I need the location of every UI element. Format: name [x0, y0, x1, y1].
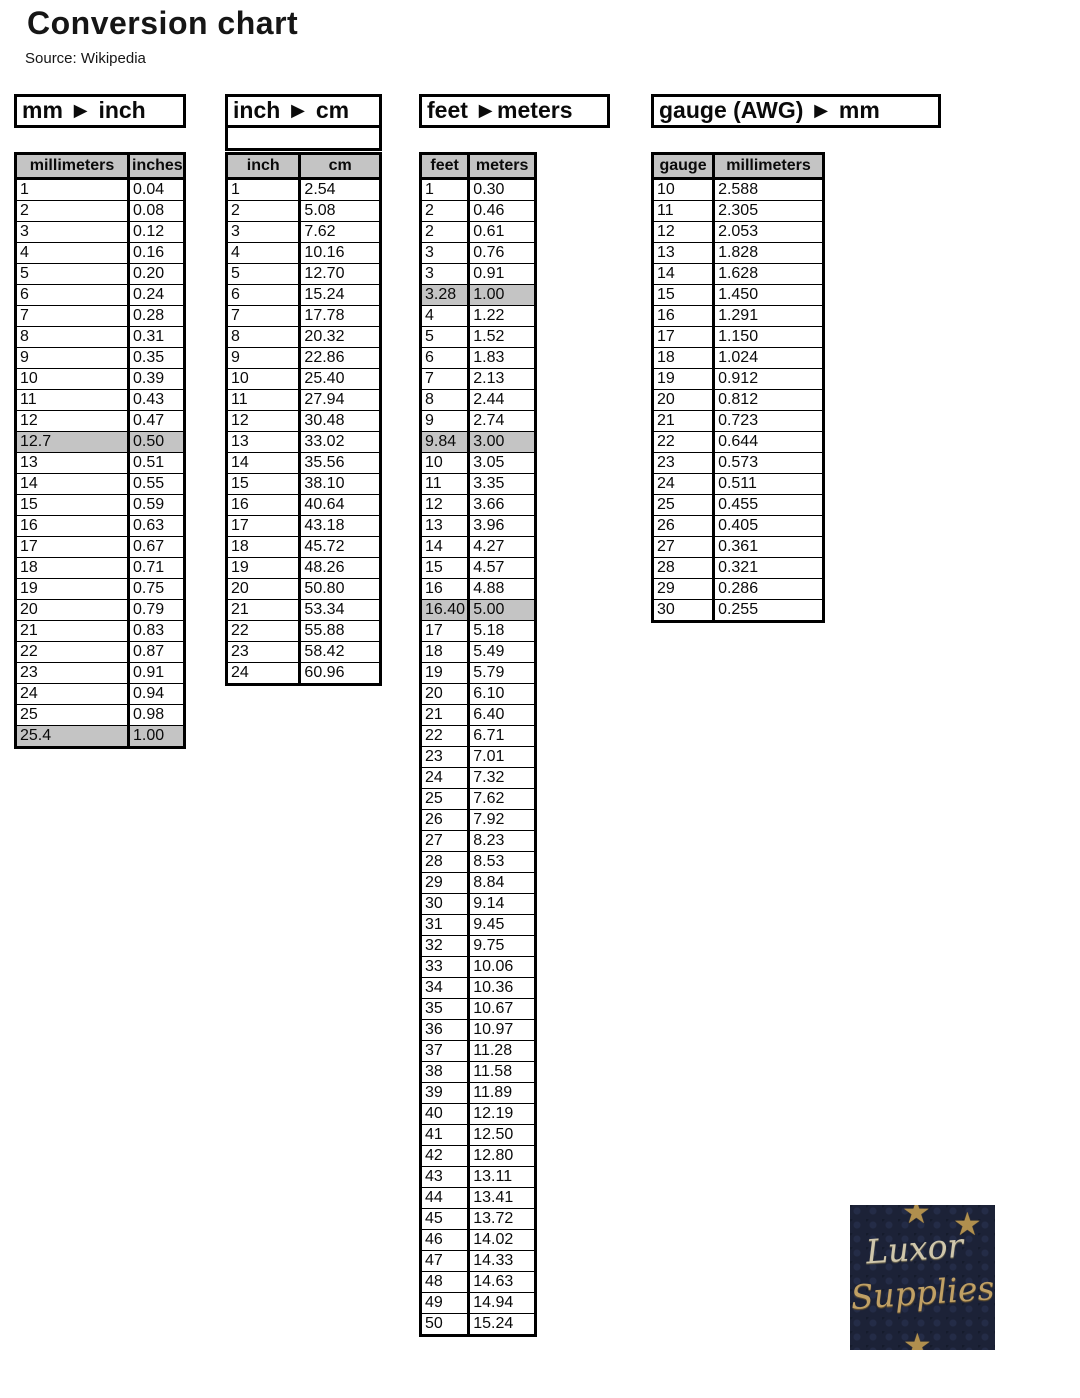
table-row: 288.53 [421, 852, 536, 873]
table-cell: 13 [227, 432, 300, 453]
table-cell: 11.28 [469, 1041, 536, 1062]
table-cell: 3.28 [421, 285, 469, 306]
table-row: 4814.63 [421, 1272, 536, 1293]
table-cell: 0.16 [129, 243, 185, 264]
table-cell: 60.96 [300, 663, 381, 685]
table-row: 298.84 [421, 873, 536, 894]
table-cell: 0.912 [714, 369, 824, 390]
table-cell: 0.98 [129, 705, 185, 726]
table-row: 717.78 [227, 306, 381, 327]
table-cell: 3 [16, 222, 129, 243]
table-row: 1845.72 [227, 537, 381, 558]
table-cell: 28 [421, 852, 469, 873]
table-cell: 46 [421, 1230, 469, 1251]
table-cell: 4.57 [469, 558, 536, 579]
table-cell: 9.75 [469, 936, 536, 957]
table-cell: 0.47 [129, 411, 185, 432]
table-row: 3410.36 [421, 978, 536, 999]
table-cell: 0.59 [129, 495, 185, 516]
table-row: 25.41.00 [16, 726, 185, 748]
table-cell: 40.64 [300, 495, 381, 516]
table-cell: 1.828 [714, 243, 824, 264]
table-cell: 7 [421, 369, 469, 390]
table-row: 110.43 [16, 390, 185, 411]
table-cell: 22 [227, 621, 300, 642]
column-header: feet [421, 154, 469, 179]
table-cell: 10.97 [469, 1020, 536, 1041]
table-cell: 11 [227, 390, 300, 411]
table-cell: 20 [16, 600, 129, 621]
table-cell: 45.72 [300, 537, 381, 558]
conversion-table-mm-inch: millimetersinches10.0420.0830.1240.1650.… [14, 152, 186, 749]
table-cell: 33 [421, 957, 469, 978]
table-row: 210.83 [16, 621, 185, 642]
table-cell: 0.31 [129, 327, 185, 348]
table-row: 181.024 [653, 348, 824, 369]
column-header: millimeters [714, 154, 824, 179]
table-row: 154.57 [421, 558, 536, 579]
table-cell: 0.12 [129, 222, 185, 243]
table-cell: 7.92 [469, 810, 536, 831]
table-row: 240.511 [653, 474, 824, 495]
table-row: 2460.96 [227, 663, 381, 685]
table-cell: 11 [421, 474, 469, 495]
table-row: 247.32 [421, 768, 536, 789]
table-row: 102.588 [653, 179, 824, 201]
table-cell: 27 [421, 831, 469, 852]
table-cell: 33.02 [300, 432, 381, 453]
table-row: 10.30 [421, 179, 536, 201]
table-row: 1948.26 [227, 558, 381, 579]
table-cell: 3 [421, 243, 469, 264]
table-row: 123.66 [421, 495, 536, 516]
table-row: 171.150 [653, 327, 824, 348]
table-row: 150.59 [16, 495, 185, 516]
table-cell: 12.7 [16, 432, 129, 453]
table-row: 30.76 [421, 243, 536, 264]
table-cell: 4.88 [469, 579, 536, 600]
table-row: 210.723 [653, 411, 824, 432]
table-row: 820.32 [227, 327, 381, 348]
table-cell: 0.04 [129, 179, 185, 201]
table-cell: 15 [16, 495, 129, 516]
table-cell: 19 [16, 579, 129, 600]
table-cell: 4 [16, 243, 129, 264]
table-cell: 0.83 [129, 621, 185, 642]
table-cell: 9.45 [469, 915, 536, 936]
table-cell: 6.10 [469, 684, 536, 705]
table-cell: 5.08 [300, 201, 381, 222]
table-row: 1127.94 [227, 390, 381, 411]
table-row: 20.08 [16, 201, 185, 222]
table-row: 300.255 [653, 600, 824, 622]
table-cell: 39 [421, 1083, 469, 1104]
table-cell: 10 [227, 369, 300, 390]
table-row: 5015.24 [421, 1314, 536, 1336]
table-cell: 20.32 [300, 327, 381, 348]
table-cell: 3.66 [469, 495, 536, 516]
section-mm-inch: mm ► inch millimetersinches10.0420.0830.… [14, 94, 186, 749]
table-row: 50.20 [16, 264, 185, 285]
table-row: 200.79 [16, 600, 185, 621]
table-cell: 0.08 [129, 201, 185, 222]
table-cell: 1.628 [714, 264, 824, 285]
table-cell: 17 [421, 621, 469, 642]
conversion-table-inch-cm: inchcm12.5425.0837.62410.16512.70615.247… [225, 152, 382, 686]
table-row: 141.628 [653, 264, 824, 285]
table-row: 1640.64 [227, 495, 381, 516]
table-cell: 5 [421, 327, 469, 348]
table-row: 220.644 [653, 432, 824, 453]
table-row: 2050.80 [227, 579, 381, 600]
table-cell: 2 [421, 201, 469, 222]
table-cell: 1.150 [714, 327, 824, 348]
table-cell: 0.39 [129, 369, 185, 390]
table-cell: 0.511 [714, 474, 824, 495]
table-cell: 16 [653, 306, 714, 327]
conversion-table-feet-meters: feetmeters10.3020.4620.6130.7630.913.281… [419, 152, 537, 1337]
table-cell: 0.321 [714, 558, 824, 579]
table-cell: 9.14 [469, 894, 536, 915]
table-cell: 0.67 [129, 537, 185, 558]
table-cell: 17 [653, 327, 714, 348]
table-cell: 14 [16, 474, 129, 495]
table-cell: 55.88 [300, 621, 381, 642]
table-cell: 13 [16, 453, 129, 474]
table-cell: 1 [421, 179, 469, 201]
table-row: 16.405.00 [421, 600, 536, 621]
table-row: 260.405 [653, 516, 824, 537]
table-row: 257.62 [421, 789, 536, 810]
table-cell: 0.51 [129, 453, 185, 474]
table-row: 92.74 [421, 411, 536, 432]
table-row: 161.291 [653, 306, 824, 327]
table-cell: 2.74 [469, 411, 536, 432]
table-cell: 2.44 [469, 390, 536, 411]
table-row: 4313.11 [421, 1167, 536, 1188]
table-cell: 49 [421, 1293, 469, 1314]
table-row: 3711.28 [421, 1041, 536, 1062]
table-cell: 2.588 [714, 179, 824, 201]
table-cell: 3.96 [469, 516, 536, 537]
table-row: 1743.18 [227, 516, 381, 537]
table-cell: 0.94 [129, 684, 185, 705]
column-header: millimeters [16, 154, 129, 179]
table-cell: 1.52 [469, 327, 536, 348]
table-cell: 19 [653, 369, 714, 390]
table-row: 112.305 [653, 201, 824, 222]
table-cell: 15.24 [300, 285, 381, 306]
table-cell: 14 [227, 453, 300, 474]
table-row: 100.39 [16, 369, 185, 390]
table-cell: 35.56 [300, 453, 381, 474]
table-cell: 20 [421, 684, 469, 705]
table-cell: 15 [653, 285, 714, 306]
table-row: 60.24 [16, 285, 185, 306]
luxor-supplies-logo: ★ ★ ★ Luxor Supplies [850, 1205, 995, 1350]
table-cell: 30 [421, 894, 469, 915]
table-row: 12.70.50 [16, 432, 185, 453]
table-row: 3811.58 [421, 1062, 536, 1083]
table-cell: 9 [16, 348, 129, 369]
table-row: 290.286 [653, 579, 824, 600]
table-row: 151.450 [653, 285, 824, 306]
table-cell: 9.84 [421, 432, 469, 453]
table-cell: 14 [421, 537, 469, 558]
table-cell: 37 [421, 1041, 469, 1062]
table-cell: 17 [227, 516, 300, 537]
table-cell: 24 [653, 474, 714, 495]
table-cell: 44 [421, 1188, 469, 1209]
table-row: 1435.56 [227, 453, 381, 474]
table-cell: 0.43 [129, 390, 185, 411]
table-cell: 5.79 [469, 663, 536, 684]
table-row: 160.63 [16, 516, 185, 537]
table-cell: 2.305 [714, 201, 824, 222]
table-cell: 40 [421, 1104, 469, 1125]
table-cell: 0.286 [714, 579, 824, 600]
table-row: 1333.02 [227, 432, 381, 453]
table-cell: 5.00 [469, 600, 536, 621]
table-cell: 38.10 [300, 474, 381, 495]
table-row: 512.70 [227, 264, 381, 285]
star-icon: ★ [903, 1329, 932, 1350]
table-cell: 5.18 [469, 621, 536, 642]
table-cell: 10 [653, 179, 714, 201]
table-cell: 2.13 [469, 369, 536, 390]
table-cell: 15 [421, 558, 469, 579]
table-cell: 20 [227, 579, 300, 600]
table-cell: 0.255 [714, 600, 824, 622]
table-cell: 18 [653, 348, 714, 369]
table-cell: 4 [227, 243, 300, 264]
table-row: 170.67 [16, 537, 185, 558]
table-cell: 7.62 [300, 222, 381, 243]
table-cell: 31 [421, 915, 469, 936]
table-cell: 12 [16, 411, 129, 432]
table-cell: 5 [16, 264, 129, 285]
table-cell: 0.20 [129, 264, 185, 285]
table-cell: 0.91 [469, 264, 536, 285]
table-cell: 43.18 [300, 516, 381, 537]
table-cell: 34 [421, 978, 469, 999]
table-row: 103.05 [421, 453, 536, 474]
table-cell: 58.42 [300, 642, 381, 663]
conversion-table-gauge-mm: gaugemillimeters102.588112.305122.053131… [651, 152, 825, 623]
table-row: 4012.19 [421, 1104, 536, 1125]
table-row: 20.46 [421, 201, 536, 222]
table-cell: 0.812 [714, 390, 824, 411]
table-row: 240.94 [16, 684, 185, 705]
table-cell: 45 [421, 1209, 469, 1230]
table-cell: 1.00 [129, 726, 185, 748]
table-row: 120.47 [16, 411, 185, 432]
table-cell: 0.28 [129, 306, 185, 327]
table-row: 1025.40 [227, 369, 381, 390]
table-cell: 29 [421, 873, 469, 894]
table-row: 122.053 [653, 222, 824, 243]
section-gauge-mm: gauge (AWG) ► mm gaugemillimeters102.588… [651, 94, 941, 623]
table-title-gauge-mm: gauge (AWG) ► mm [651, 94, 941, 128]
table-row: 4212.80 [421, 1146, 536, 1167]
column-header: inches [129, 154, 185, 179]
table-cell: 0.76 [469, 243, 536, 264]
table-cell: 21 [227, 600, 300, 621]
table-cell: 12.80 [469, 1146, 536, 1167]
table-cell: 8 [421, 390, 469, 411]
table-row: 80.31 [16, 327, 185, 348]
table-cell: 22 [16, 642, 129, 663]
table-cell: 36 [421, 1020, 469, 1041]
table-cell: 7 [227, 306, 300, 327]
column-header: meters [469, 154, 536, 179]
table-cell: 13.11 [469, 1167, 536, 1188]
table-row: 130.51 [16, 453, 185, 474]
table-cell: 9 [227, 348, 300, 369]
table-row: 270.361 [653, 537, 824, 558]
table-cell: 5 [227, 264, 300, 285]
table-row: 4914.94 [421, 1293, 536, 1314]
table-row: 3510.67 [421, 999, 536, 1020]
table-cell: 21 [653, 411, 714, 432]
table-row: 250.455 [653, 495, 824, 516]
table-row: 20.61 [421, 222, 536, 243]
document-page: Conversion chart Source: Wikipedia mm ► … [0, 0, 1080, 1398]
table-cell: 16 [227, 495, 300, 516]
table-row: 319.45 [421, 915, 536, 936]
table-cell: 42 [421, 1146, 469, 1167]
table-cell: 0.63 [129, 516, 185, 537]
table-cell: 11.58 [469, 1062, 536, 1083]
table-row: 72.13 [421, 369, 536, 390]
table-cell: 32 [421, 936, 469, 957]
table-row: 10.04 [16, 179, 185, 201]
table-row: 2255.88 [227, 621, 381, 642]
table-cell: 1.00 [469, 285, 536, 306]
table-cell: 53.34 [300, 600, 381, 621]
table-cell: 3.05 [469, 453, 536, 474]
table-cell: 26 [653, 516, 714, 537]
table-cell: 24 [16, 684, 129, 705]
table-row: 230.573 [653, 453, 824, 474]
table-cell: 30.48 [300, 411, 381, 432]
table-cell: 21 [16, 621, 129, 642]
table-row: 216.40 [421, 705, 536, 726]
table-cell: 4.27 [469, 537, 536, 558]
table-cell: 11 [653, 201, 714, 222]
column-header: inch [227, 154, 300, 179]
table-title-feet-meters: feet ►meters [419, 94, 610, 128]
table-cell: 0.91 [129, 663, 185, 684]
table-cell: 35 [421, 999, 469, 1020]
table-row: 3.281.00 [421, 285, 536, 306]
table-cell: 14.02 [469, 1230, 536, 1251]
table-cell: 23 [653, 453, 714, 474]
table-cell: 12.19 [469, 1104, 536, 1125]
table-cell: 0.30 [469, 179, 536, 201]
table-row: 90.35 [16, 348, 185, 369]
table-cell: 0.405 [714, 516, 824, 537]
source-note: Source: Wikipedia [25, 50, 146, 67]
table-cell: 1.291 [714, 306, 824, 327]
table-cell: 15.24 [469, 1314, 536, 1336]
table-cell: 1 [227, 179, 300, 201]
table-cell: 8 [16, 327, 129, 348]
table-cell: 0.71 [129, 558, 185, 579]
logo-text-line1: Luxor [850, 1224, 988, 1273]
table-cell: 25.4 [16, 726, 129, 748]
table-cell: 48.26 [300, 558, 381, 579]
table-cell: 1.22 [469, 306, 536, 327]
table-row: 220.87 [16, 642, 185, 663]
table-cell: 10.06 [469, 957, 536, 978]
table-cell: 48 [421, 1272, 469, 1293]
table-row: 230.91 [16, 663, 185, 684]
table-cell: 1.83 [469, 348, 536, 369]
table-cell: 12 [421, 495, 469, 516]
table-cell: 27 [653, 537, 714, 558]
table-row: 250.98 [16, 705, 185, 726]
table-cell: 6.40 [469, 705, 536, 726]
table-row: 51.52 [421, 327, 536, 348]
table-cell: 14.33 [469, 1251, 536, 1272]
table-cell: 13 [653, 243, 714, 264]
table-cell: 8.84 [469, 873, 536, 894]
table-row: 190.75 [16, 579, 185, 600]
table-row: 922.86 [227, 348, 381, 369]
table-cell: 18 [421, 642, 469, 663]
table-cell: 18 [16, 558, 129, 579]
header-row: feetmeters [421, 154, 536, 179]
table-cell: 14.63 [469, 1272, 536, 1293]
table-cell: 10 [421, 453, 469, 474]
table-cell: 11 [16, 390, 129, 411]
table-cell: 29 [653, 579, 714, 600]
table-cell: 12.50 [469, 1125, 536, 1146]
table-cell: 19 [421, 663, 469, 684]
table-cell: 25 [421, 789, 469, 810]
header-row: inchcm [227, 154, 381, 179]
table-cell: 15 [227, 474, 300, 495]
table-cell: 2 [227, 201, 300, 222]
table-cell: 23 [227, 642, 300, 663]
section-feet-meters: feet ►meters feetmeters10.3020.4620.6130… [419, 94, 610, 1337]
table-row: 226.71 [421, 726, 536, 747]
table-cell: 25 [16, 705, 129, 726]
table-row: 3610.97 [421, 1020, 536, 1041]
table-row: 37.62 [227, 222, 381, 243]
table-row: 309.14 [421, 894, 536, 915]
table-row: 4112.50 [421, 1125, 536, 1146]
table-cell: 0.723 [714, 411, 824, 432]
table-cell: 17 [16, 537, 129, 558]
table-cell: 0.24 [129, 285, 185, 306]
table-cell: 2 [421, 222, 469, 243]
table-cell: 38 [421, 1062, 469, 1083]
table-cell: 6 [227, 285, 300, 306]
table-cell: 21 [421, 705, 469, 726]
table-title-mm-inch: mm ► inch [14, 94, 186, 128]
table-cell: 1.450 [714, 285, 824, 306]
table-cell: 1.024 [714, 348, 824, 369]
table-cell: 24 [227, 663, 300, 685]
table-row: 190.912 [653, 369, 824, 390]
table-cell: 24 [421, 768, 469, 789]
table-row: 12.54 [227, 179, 381, 201]
table-cell: 5.49 [469, 642, 536, 663]
table-row: 278.23 [421, 831, 536, 852]
table-cell: 2 [16, 201, 129, 222]
